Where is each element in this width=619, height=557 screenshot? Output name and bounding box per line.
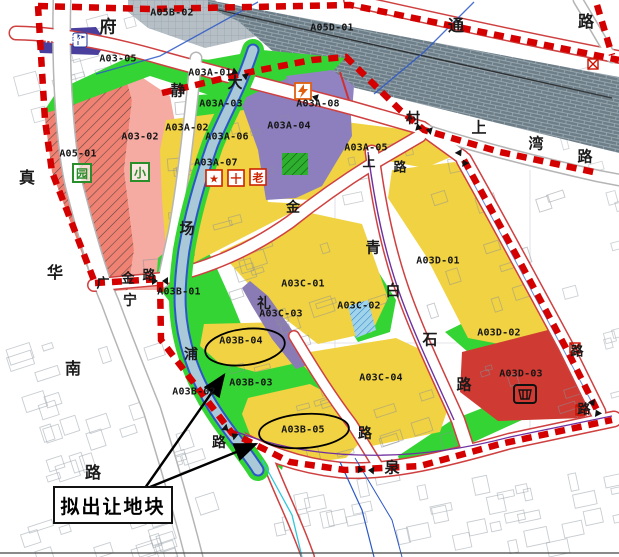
health-icon: 十 xyxy=(228,170,244,186)
svg-text:老: 老 xyxy=(252,171,264,185)
svg-text:小: 小 xyxy=(134,165,146,180)
star-icon: ★ xyxy=(206,170,222,186)
svg-text:园: 园 xyxy=(76,167,88,181)
callout-label: 拟出让地块 xyxy=(60,492,165,519)
primary-school-icon: 小 xyxy=(131,163,149,181)
map-graphics: 园 小 ★ 十 老 xyxy=(0,0,619,557)
planning-map: 园 小 ★ 十 老 A05B-02A05D-01A03-04A03-05A03A… xyxy=(0,0,619,557)
svg-text:★: ★ xyxy=(209,173,219,186)
culture-icon xyxy=(73,33,87,47)
parcel-green-hatched-h xyxy=(282,153,308,175)
elderly-care-icon: 老 xyxy=(250,169,266,185)
substation-icon xyxy=(295,83,311,99)
kindergarten-icon: 园 xyxy=(73,164,91,182)
callout-box: 拟出让地块 xyxy=(53,486,173,524)
svg-text:十: 十 xyxy=(231,172,242,186)
